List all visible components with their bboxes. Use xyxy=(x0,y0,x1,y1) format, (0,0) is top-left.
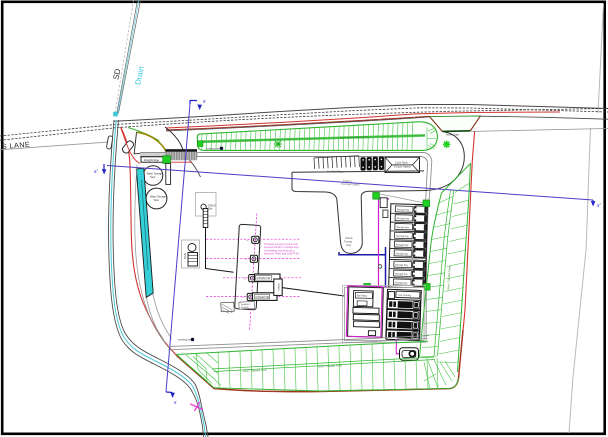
svg-text:25m: 25m xyxy=(208,208,213,211)
svg-text:x: x xyxy=(173,400,177,406)
svg-text:Tank: Tank xyxy=(150,176,156,179)
svg-text:Storage Bay: Storage Bay xyxy=(397,208,411,211)
svg-text:Area: Area xyxy=(346,244,352,247)
svg-text:Storage Bay: Storage Bay xyxy=(395,281,409,284)
svg-text:Storage Bay: Storage Bay xyxy=(395,272,409,275)
svg-text:Storage Bay: Storage Bay xyxy=(396,252,410,255)
svg-text:Trommel: Trommel xyxy=(240,303,250,306)
svg-text:Screen: Screen xyxy=(241,306,249,309)
svg-text:⌀: ⌀ xyxy=(246,257,248,261)
svg-text:CONVEYOR: CONVEYOR xyxy=(257,277,271,280)
svg-text:Storage Bay: Storage Bay xyxy=(396,217,410,220)
svg-text:Tank: Tank xyxy=(154,199,160,202)
svg-text:FLUE: FLUE xyxy=(185,253,187,259)
svg-text:8 Cycle Stands: 8 Cycle Stands xyxy=(394,165,412,168)
svg-text:Storage Bay: Storage Bay xyxy=(396,243,410,246)
svg-text:CONVEYOR: CONVEYOR xyxy=(256,296,270,299)
svg-text:Site Office: Site Office xyxy=(357,294,368,297)
svg-text:Van Parking: Van Parking xyxy=(398,294,412,297)
svg-text:⌀: ⌀ xyxy=(244,276,246,280)
svg-text:Weighbridge: Weighbridge xyxy=(144,158,160,162)
svg-text:existing tree: existing tree xyxy=(178,338,193,342)
svg-text:perimeter. Refer dwg 1025-P-20: perimeter. Refer dwg 1025-P-201 xyxy=(264,253,300,256)
svg-text:existing tree: existing tree xyxy=(206,146,221,150)
svg-text:Storage Bay: Storage Bay xyxy=(396,226,410,229)
svg-text:Access Gate: Access Gate xyxy=(446,134,460,137)
svg-text:⌀: ⌀ xyxy=(243,295,245,299)
svg-text:TOWER: TOWER xyxy=(279,283,281,292)
svg-text:Storage Bay: Storage Bay xyxy=(395,264,409,267)
svg-text:Storage Bay: Storage Bay xyxy=(396,235,410,238)
svg-text:⌀: ⌀ xyxy=(247,238,249,242)
svg-text:Staff / Visitor Car Parking: Staff / Visitor Car Parking xyxy=(340,135,370,140)
svg-text:x: x xyxy=(202,99,206,105)
svg-text:Cycle Store: Cycle Store xyxy=(395,161,409,164)
